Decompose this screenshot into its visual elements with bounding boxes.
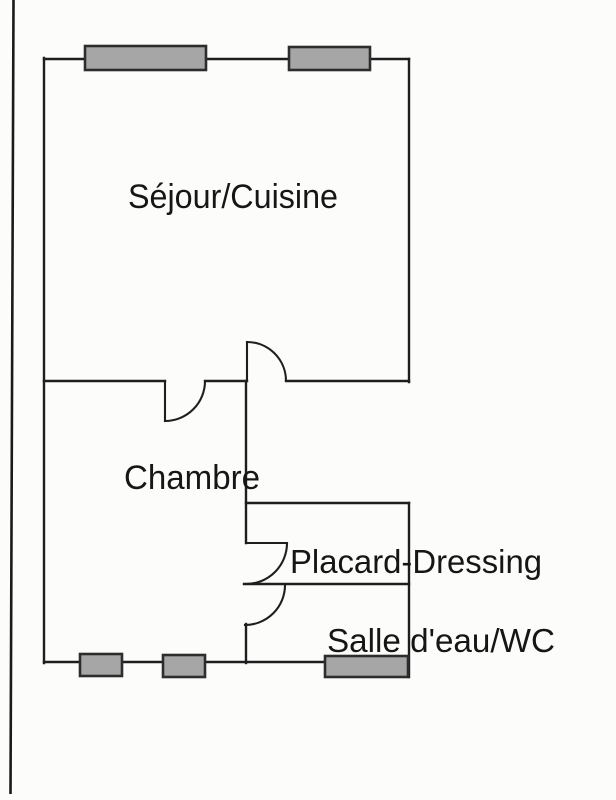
- window-sejour-left: [85, 46, 206, 70]
- floorplan-drawing: Séjour/Cuisine Chambre Placard-Dressing …: [0, 0, 616, 800]
- page-border-line: [11, 0, 14, 794]
- placard-door-arc: [246, 543, 287, 584]
- room-label-salle-deau-wc: Salle d'eau/WC: [327, 622, 555, 659]
- chambre-door-arc: [165, 381, 205, 421]
- walls-group: [44, 58, 409, 677]
- window-chambre-left: [80, 654, 122, 676]
- room-label-placard-dressing: Placard-Dressing: [290, 543, 542, 580]
- room-label-sejour-cuisine: Séjour/Cuisine: [128, 178, 338, 216]
- floorplan-page: Séjour/Cuisine Chambre Placard-Dressing …: [0, 0, 616, 800]
- room-labels-group: Séjour/Cuisine Chambre Placard-Dressing …: [124, 178, 555, 659]
- window-chambre-right: [163, 655, 205, 677]
- salle-deau-door-arc: [245, 585, 285, 625]
- window-sejour-right: [289, 47, 370, 70]
- window-salle-deau: [325, 656, 408, 677]
- windows-group: [80, 46, 408, 677]
- room-label-chambre: Chambre: [124, 459, 260, 497]
- sejour-door-arc: [247, 342, 286, 381]
